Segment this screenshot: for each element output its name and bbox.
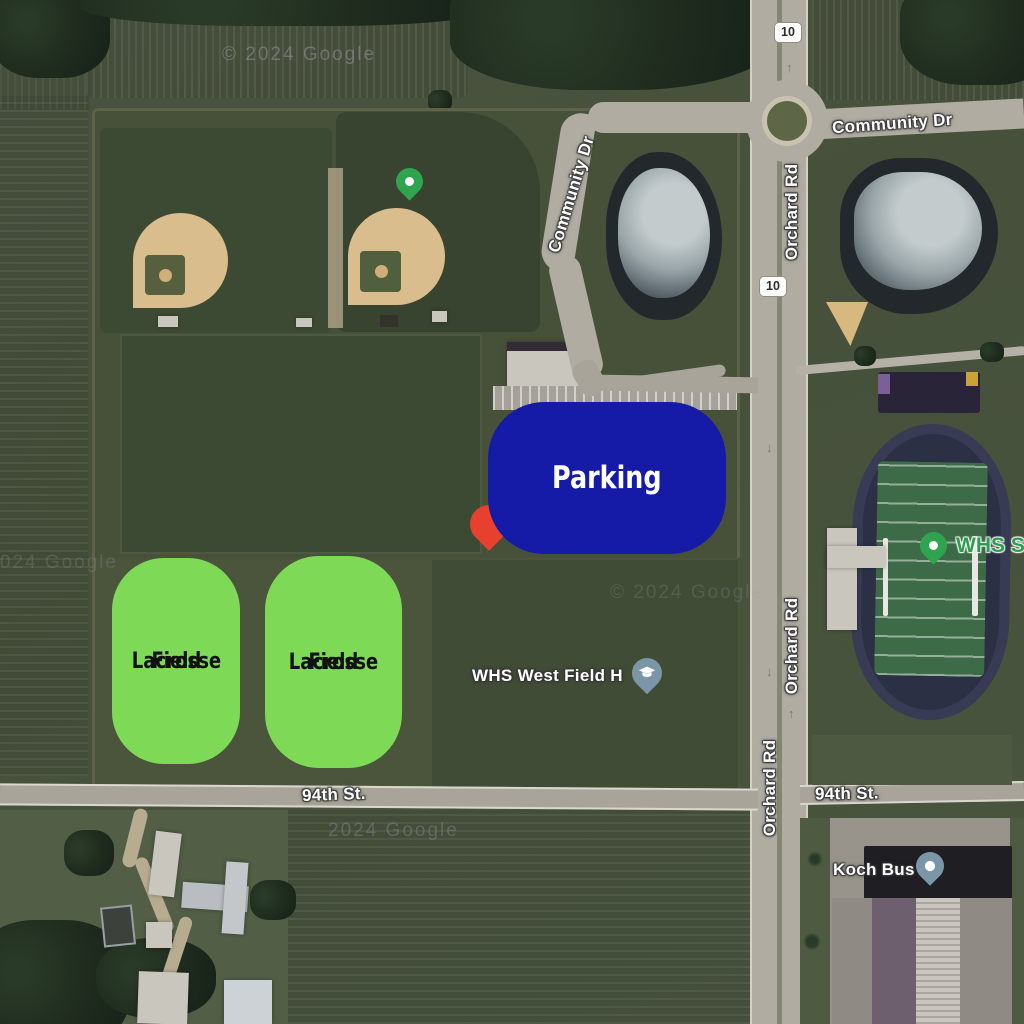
tree — [250, 880, 296, 920]
road-arrow-icon: ↓ — [766, 664, 773, 679]
road-label-orchard-rd-bottom: Orchard Rd — [760, 738, 780, 838]
google-attribution: © 2024 Google — [222, 44, 376, 66]
lacrosse-annotation-line2: Field — [151, 649, 201, 674]
satellite-map[interactable]: © 2024 Google © 2024 Google © 2024 Googl… — [0, 0, 1024, 1024]
road-arrow-icon: ↓ — [766, 440, 773, 455]
koch-green-strip-east — [1010, 818, 1024, 1024]
road-arrow-icon: ↑ — [788, 706, 795, 721]
route-10-shield: 10 — [759, 276, 787, 297]
farm-barn — [137, 971, 189, 1024]
lacrosse-field-annotation-box-2: Lacrosse Field — [265, 556, 402, 768]
dugout — [432, 311, 447, 322]
koch-green-strip — [800, 818, 830, 1024]
dugout — [296, 318, 312, 327]
dugout — [158, 316, 178, 327]
farm-field-bottom — [284, 810, 754, 1024]
google-attribution: © 2024 Google — [0, 552, 118, 574]
stadium-west-building-wing — [827, 546, 885, 568]
road-arrow-icon: ↑ — [786, 60, 793, 75]
baseball-diamond-east — [348, 208, 445, 305]
road-label-orchard-rd-mid: Orchard Rd — [782, 596, 802, 696]
koch-building — [832, 898, 1012, 1024]
route-10-shield: 10 — [774, 22, 802, 43]
stadium-west-building — [827, 528, 857, 630]
tree — [64, 830, 114, 876]
roundabout-island — [762, 96, 812, 146]
parking-annotation-label: Parking — [552, 460, 662, 496]
tree — [854, 346, 876, 366]
dugout — [380, 315, 398, 327]
farm-shed — [146, 922, 172, 948]
poi-label-whs-west-field[interactable]: WHS West Field H — [472, 666, 623, 686]
tree — [980, 342, 1004, 362]
lacrosse-annotation-line2: Field — [309, 650, 359, 675]
road-label-94th-st-west: 94th St. — [302, 784, 366, 806]
google-attribution: 2024 Google — [328, 820, 459, 842]
poi-label-koch-bus[interactable]: Koch Bus — [833, 860, 915, 880]
farm-house — [100, 904, 136, 947]
walkway — [328, 168, 343, 328]
poi-label-whs-stadium[interactable]: WHS Sta — [956, 534, 1024, 558]
community-dr-road — [588, 102, 758, 133]
farm-barn — [224, 980, 272, 1024]
lacrosse-field-annotation-box-1: Lacrosse Field — [112, 558, 240, 764]
road-label-94th-st-east: 94th St. — [815, 783, 879, 804]
stadium-north-building — [878, 372, 980, 413]
farm-field-left-strip — [0, 96, 88, 776]
pond-west-water — [618, 168, 710, 298]
road-label-orchard-rd-top: Orchard Rd — [782, 162, 802, 262]
football-field — [874, 461, 988, 677]
stadium-south-grass — [812, 735, 1012, 785]
parking-annotation-box: Parking — [488, 402, 726, 554]
soccer-field — [120, 334, 482, 554]
google-attribution: © 2024 Google — [610, 582, 764, 604]
baseball-diamond-west — [133, 213, 228, 308]
